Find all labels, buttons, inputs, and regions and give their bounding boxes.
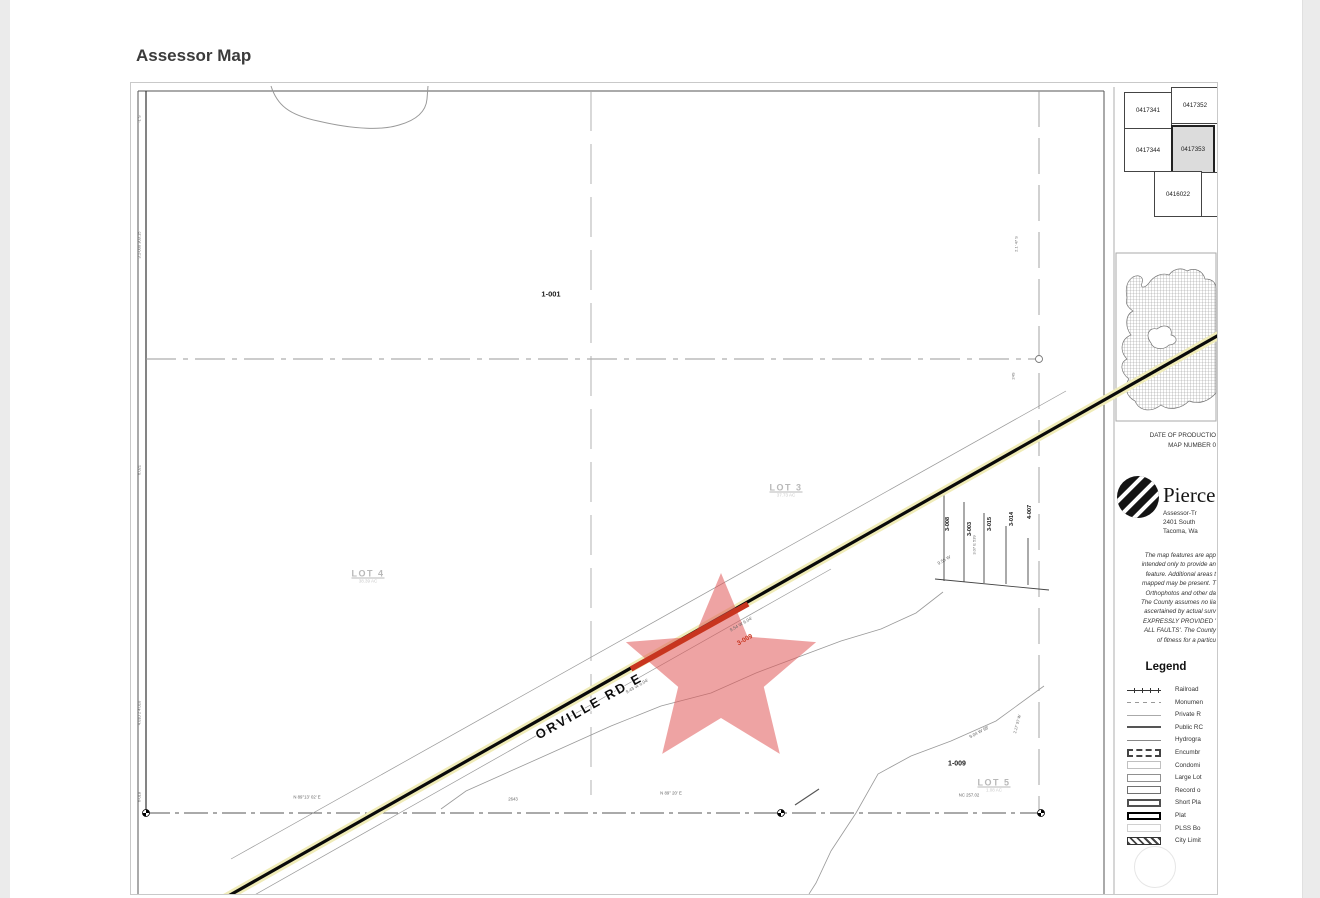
- legend-item-label: Public RC: [1175, 724, 1203, 731]
- encumbrance-symbol-icon: [1127, 749, 1161, 757]
- map-number-line: MAP NUMBER 0: [1116, 441, 1216, 451]
- condominium-symbol-icon: [1127, 761, 1161, 769]
- compass-circle: [1134, 846, 1176, 888]
- legend-item-label: City Limit: [1175, 837, 1201, 844]
- monument-symbol: [1038, 810, 1045, 817]
- railroad-symbol-icon: [1127, 686, 1161, 694]
- monument-symbol: [778, 810, 785, 817]
- legend-item: Hydrogra: [1127, 734, 1201, 745]
- legend-title: Legend: [1116, 661, 1216, 673]
- parcel-grid-cell: 0417352: [1171, 87, 1218, 124]
- large-lot-symbol-icon: [1127, 774, 1161, 782]
- map-linework: [131, 83, 1217, 894]
- legend-item-label: Private R: [1175, 711, 1201, 718]
- legend-item-label: Condomi: [1175, 762, 1200, 769]
- legend-item-label: Plat: [1175, 812, 1186, 819]
- map-frame: [138, 91, 1104, 894]
- legend-item-label: Large Lot: [1175, 774, 1202, 781]
- parcel-grid-cell: 0417341: [1124, 92, 1172, 129]
- legend-item: Encumbr: [1127, 747, 1200, 758]
- parcel-grid-cell: 0417353: [1171, 125, 1215, 174]
- legend-item: PLSS Bo: [1127, 823, 1201, 834]
- right-of-way-line: [231, 391, 1066, 859]
- legend-item: Short Pla: [1127, 797, 1201, 808]
- star-marker: [626, 573, 816, 754]
- plat-symbol-icon: [1127, 812, 1161, 820]
- legend-item: Private R: [1127, 709, 1201, 720]
- record-of-survey-symbol-icon: [1127, 786, 1161, 794]
- tick-line: [795, 789, 819, 805]
- monument-symbol: [143, 810, 150, 817]
- monument-symbol-icon: [1127, 698, 1161, 706]
- stream-line: [809, 686, 1044, 894]
- private-road-symbol-icon: [1127, 711, 1161, 719]
- section-corner-circle: [1036, 356, 1043, 363]
- legend-item-label: Railroad: [1175, 686, 1198, 693]
- legend-item-label: PLSS Bo: [1175, 825, 1201, 832]
- assessor-map-image: 1-0011-0093-0093-0083-0033-0153-0144-007…: [130, 82, 1218, 895]
- hydrography-line: [271, 86, 428, 128]
- agency-name: Pierce: [1163, 483, 1215, 508]
- parcel-grid-cell: [1201, 172, 1218, 217]
- page-title: Assessor Map: [136, 46, 251, 66]
- legend-item: Railroad: [1127, 684, 1198, 695]
- production-date-line: DATE OF PRODUCTIO: [1116, 431, 1216, 441]
- legend-item: Condomi: [1127, 760, 1200, 771]
- legend-item: Public RC: [1127, 722, 1203, 733]
- parcel-grid-cell: 0416022: [1154, 171, 1202, 217]
- plss-boundary-symbol-icon: [1127, 824, 1161, 832]
- city-limit-symbol-icon: [1127, 837, 1161, 845]
- legend-item: Large Lot: [1127, 772, 1202, 783]
- legend-item: Monumen: [1127, 697, 1203, 708]
- page-gutter: [1302, 0, 1320, 898]
- legend-item-label: Monumen: [1175, 699, 1203, 706]
- legend-item: Plat: [1127, 810, 1186, 821]
- hydrography-symbol-icon: [1127, 736, 1161, 744]
- legend-item-label: Hydrogra: [1175, 736, 1201, 743]
- public-road-symbol-icon: [1127, 723, 1161, 731]
- parcel-strips: [935, 491, 1049, 590]
- parcel-grid-cell: 0417344: [1124, 128, 1172, 172]
- legend-item: Record o: [1127, 785, 1201, 796]
- legend-item-label: Short Pla: [1175, 799, 1201, 806]
- pierce-county-logo-icon: [1115, 474, 1161, 525]
- page-content: Assessor Map: [10, 0, 1303, 898]
- legend-item-label: Encumbr: [1175, 749, 1200, 756]
- production-info: DATE OF PRODUCTIO MAP NUMBER 0: [1116, 431, 1216, 450]
- legend-item: City Limit: [1127, 835, 1201, 846]
- legend-item-label: Record o: [1175, 787, 1201, 794]
- agency-address: Assessor-Tr 2401 South Tacoma, Wa: [1163, 509, 1198, 536]
- short-plat-symbol-icon: [1127, 799, 1161, 807]
- disclaimer-text: The map features are appintended only to…: [1116, 551, 1216, 645]
